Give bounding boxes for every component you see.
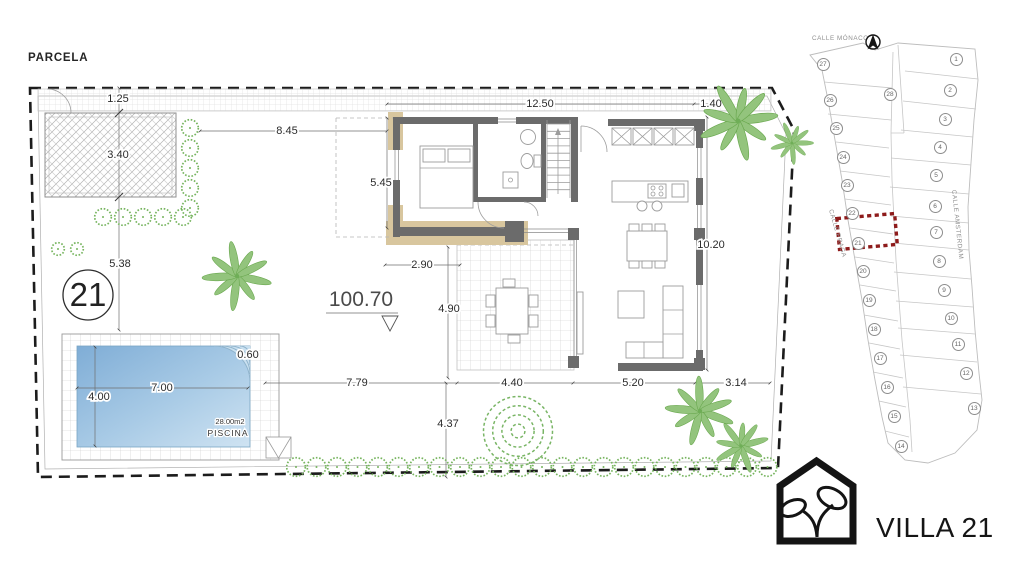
svg-text:12.50: 12.50 [526,98,554,110]
coffee-table [618,291,644,318]
map-plot-number: 13 [968,402,981,415]
map-plot-number: 24 [837,151,850,164]
tv-sideboard [577,292,583,354]
map-plot-number: 8 [933,255,946,268]
plot-number-badge: 21 [63,270,113,320]
map-plot-number: 5 [930,169,943,182]
map-plot-number: 2 [944,84,957,97]
svg-text:1.40: 1.40 [700,98,721,110]
map-plot-number: 22 [846,207,859,220]
map-plot-markers: 2726252423222120191817161514281234567891… [795,15,1020,480]
svg-text:4.90: 4.90 [438,303,459,315]
palm-tree-icon [196,236,279,318]
svg-text:5.20: 5.20 [622,377,643,389]
outdoor-table [496,288,528,334]
pool: 7.00 4.00 0.60 28.00m2 PISCINA [62,334,291,460]
map-plot-number: 21 [852,237,865,250]
svg-text:100.70: 100.70 [329,288,393,311]
map-plot-number: 26 [824,94,837,107]
map-plot-number: 3 [939,113,952,126]
svg-text:3.40: 3.40 [107,149,128,161]
palm-tree-icon [707,413,775,481]
outdoor-shower [266,437,291,458]
pool-width-dim: 7.00 [151,382,172,394]
svg-text:1.25: 1.25 [107,93,128,105]
hedge-row [287,458,777,477]
map-plot-number: 23 [841,179,854,192]
svg-text:21: 21 [70,276,107,313]
svg-text:4.37: 4.37 [437,418,458,430]
walkway-strip [38,89,771,113]
map-plot-number: 17 [874,352,887,365]
map-plot-number: 18 [868,323,881,336]
map-plot-number: 27 [817,58,830,71]
plan-title: PARCELA [28,52,88,64]
map-plot-number: 25 [830,122,843,135]
kitchen-island [612,181,688,211]
map-plot-number: 20 [857,265,870,278]
svg-text:4.40: 4.40 [501,377,522,389]
svg-text:8.45: 8.45 [276,125,297,137]
svg-text:7.79: 7.79 [346,377,367,389]
map-plot-number: 11 [952,338,965,351]
terrace [457,240,574,370]
map-plot-number: 14 [895,440,908,453]
svg-text:5.38: 5.38 [109,258,130,270]
svg-text:5.45: 5.45 [370,177,391,189]
map-plot-number: 16 [881,381,894,394]
pool-area-label: 28.00m2 [215,417,244,426]
map-plot-number: 9 [938,284,951,297]
kitchen-cabinets [612,128,694,145]
map-plot-number: 10 [945,312,958,325]
svg-text:10.20: 10.20 [697,239,725,251]
site-plan-page: PARCELA 7.00 4.00 0.60 28.00m2 PISCINA 2… [0,0,1024,576]
map-plot-number: 15 [888,410,901,423]
map-plot-number: 12 [960,367,973,380]
bed [420,146,473,208]
villa-name: VILLA 21 [876,512,994,544]
map-plot-number: 4 [934,141,947,154]
map-plot-number: 28 [884,88,897,101]
map-plot-number: 19 [863,294,876,307]
stairs [547,120,570,198]
pool-name-label: PISCINA [207,428,248,438]
map-plot-number: 1 [950,53,963,66]
svg-text:3.14: 3.14 [725,377,746,389]
level-marker: 100.70 [326,288,398,331]
map-plot-number: 7 [930,226,943,239]
round-bush-icon [484,397,553,466]
svg-text:2.90: 2.90 [411,259,432,271]
pool-corner-dim: 0.60 [237,349,258,361]
dining-table [627,224,667,268]
pool-height-dim: 4.00 [88,391,109,403]
bathroom-fixtures [503,130,541,189]
map-plot-number: 6 [929,200,942,213]
